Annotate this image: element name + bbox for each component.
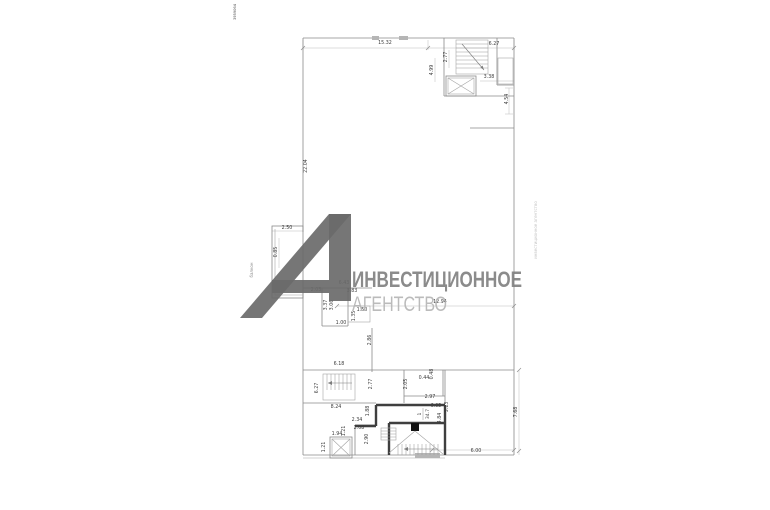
- dimension-label: 2.05: [403, 379, 409, 390]
- dimension-label: 6.18: [334, 361, 345, 367]
- dimension-label: 3.37: [323, 300, 329, 311]
- watermark-line2: АГЕНТСТВО: [352, 293, 447, 316]
- dimension-label: 0.44: [419, 375, 430, 381]
- right-margin-vertical-text: инвестиционное агентство: [533, 201, 538, 259]
- balcony-label-vertical: балкон: [249, 262, 254, 277]
- dimension-label: 3.06: [329, 300, 335, 311]
- dimension-label: 1.94: [332, 431, 343, 437]
- floorplan-page: 1 34.7 15.322.776.274.993.384.5422.042.5…: [0, 0, 770, 510]
- dimension-label: 2.77: [443, 52, 449, 63]
- floorplan-drawing: 1 34.7 15.322.776.274.993.384.5422.042.5…: [0, 0, 770, 510]
- dimension-label: 22.04: [303, 159, 309, 173]
- dimension-label: 4.99: [429, 65, 435, 76]
- room-area-value: 34.7: [425, 409, 431, 419]
- column: [411, 423, 419, 431]
- dimension-label: 2.34: [352, 417, 363, 423]
- watermark-line1: ИНВЕСТИЦИОННОЕ: [352, 267, 522, 292]
- dimension-label: 6.27: [489, 41, 500, 47]
- room-number: 1: [417, 412, 423, 415]
- roof-ridge-lines: [389, 431, 443, 454]
- dimension-label: 2.50: [282, 225, 293, 231]
- dimension-label: 2.86: [367, 335, 373, 346]
- dimension-label: 1.88: [365, 406, 371, 417]
- dimension-label: 1.00: [336, 320, 347, 326]
- dimension-label: 0.48: [429, 369, 435, 380]
- dimension-label: 6.00: [471, 448, 482, 454]
- dimension-label: 8.24: [331, 404, 342, 410]
- elevator-shaft-top: [446, 76, 476, 96]
- dimension-label: 2.77: [368, 379, 374, 390]
- dimension-label: 3.38: [484, 74, 495, 80]
- dimension-label: 6.27: [314, 383, 320, 394]
- dimension-label: 4.54: [504, 94, 510, 105]
- dimension-label: 4.84: [437, 413, 443, 424]
- dimension-label: 2.90: [364, 434, 370, 445]
- room-area-label: 1 34.7: [417, 408, 431, 420]
- dimension-label: 2.97: [425, 394, 436, 400]
- dimension-label: 1.21: [321, 442, 327, 453]
- dimension-label: 6.05: [431, 403, 442, 409]
- dimension-label: 0.85: [273, 247, 279, 258]
- stair-block-top: [444, 38, 514, 128]
- dimension-label: 7.68: [513, 407, 519, 418]
- dimension-label: 15.32: [378, 40, 392, 46]
- dimension-label: 2.08: [354, 425, 365, 431]
- sheet-number-vertical: 3959064: [233, 3, 237, 20]
- dimension-label: 5.13: [444, 402, 450, 413]
